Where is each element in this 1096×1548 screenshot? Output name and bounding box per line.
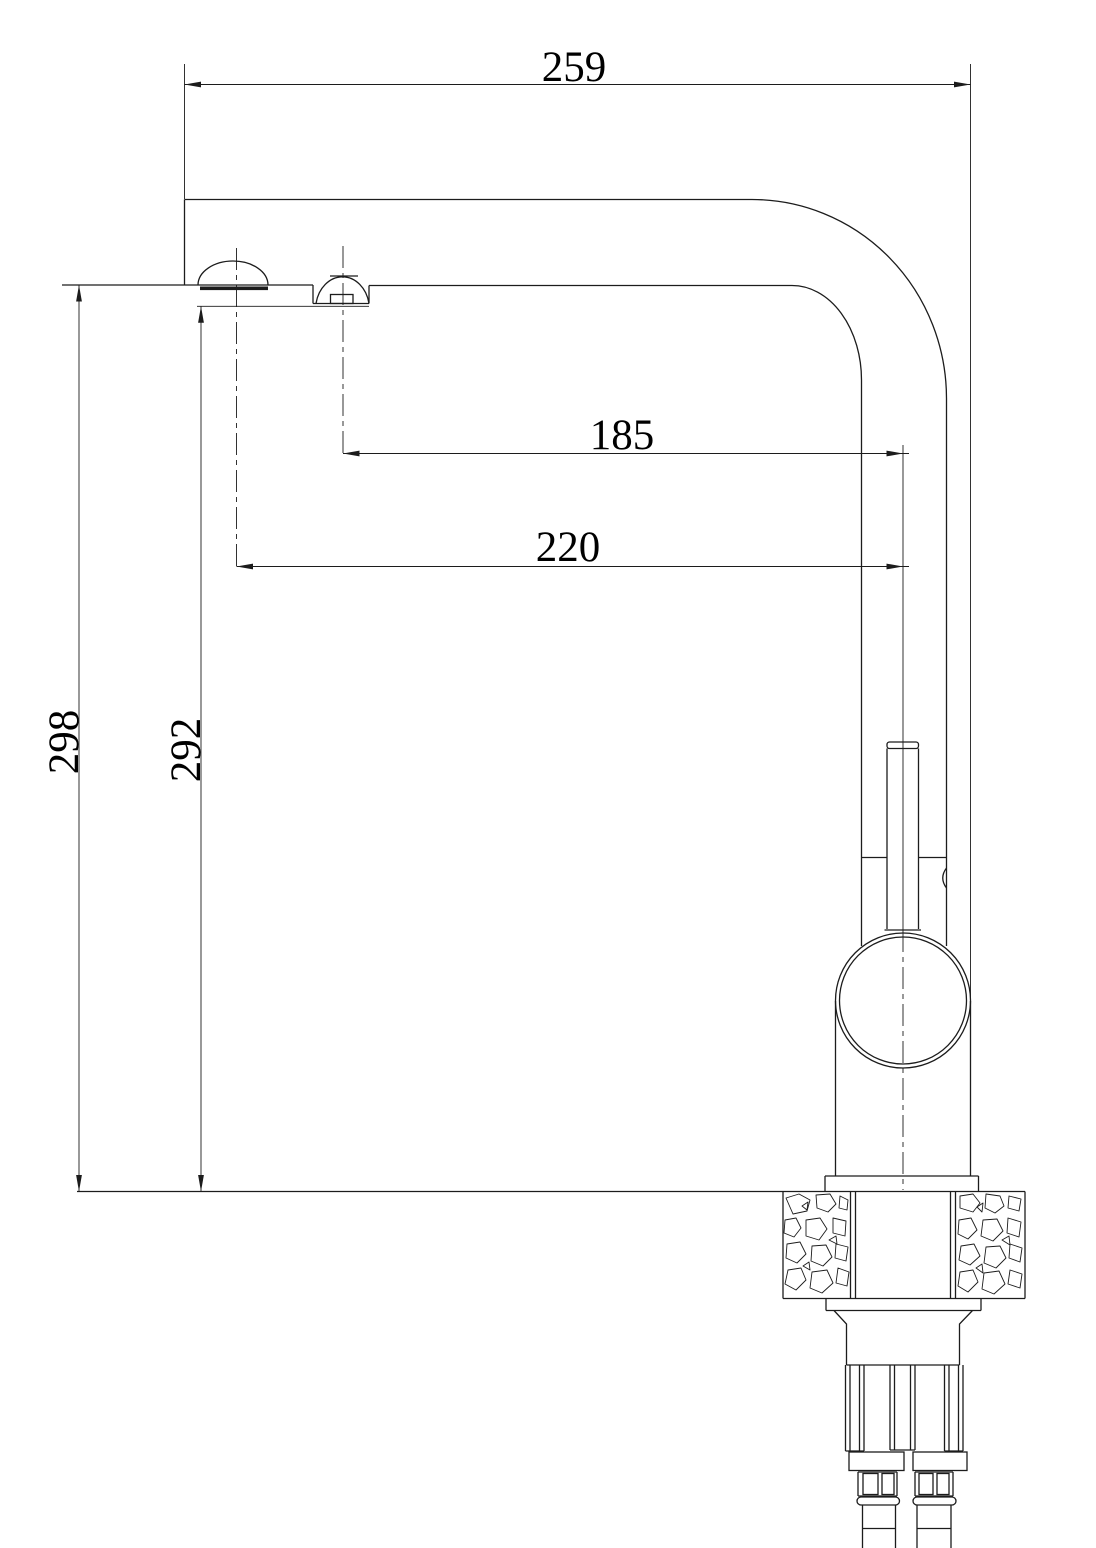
dimension-reach-main: 220: [237, 524, 910, 571]
dimension-height-secondary: 292: [163, 306, 369, 1191]
secondary-outlet-dome: [316, 277, 369, 304]
arrowhead-left: [343, 451, 360, 457]
fitting-ring: [913, 1497, 956, 1505]
faucet-outline: [62, 200, 1025, 1548]
supply-tubes: [846, 1365, 964, 1451]
supply-tube-center: [890, 1365, 915, 1450]
dimension-reach-secondary: 185: [343, 412, 909, 459]
supply-tube-left: [846, 1365, 865, 1451]
dim-reach-main-label: 220: [536, 524, 601, 571]
spout-outer-contour: [185, 200, 947, 947]
dimension-overall-width: 259: [185, 44, 971, 1176]
hose-fitting-right: [913, 1452, 967, 1548]
supply-tube-right: [945, 1365, 964, 1451]
centerlines: [237, 246, 904, 1190]
dim-overall-height-label: 298: [41, 710, 88, 775]
faucet-technical-drawing: 259 185 220 298 292: [0, 0, 1096, 1548]
nut-side-left: [834, 1311, 847, 1366]
dim-overall-width-label: 259: [542, 44, 607, 91]
secondary-outlet-port: [331, 295, 354, 304]
arrowhead-bottom: [198, 1175, 204, 1192]
fitting-window-1: [863, 1474, 878, 1495]
fitting-window-2: [882, 1474, 894, 1495]
arrowhead-bottom: [76, 1175, 82, 1192]
arrowhead-right: [887, 564, 904, 570]
fitting-window-2: [937, 1474, 949, 1495]
countertop-hatch-left: [784, 1194, 849, 1293]
arrowhead-left: [185, 82, 202, 88]
faucet-technical-drawing-page: 259 185 220 298 292: [0, 0, 1096, 1548]
arrowhead-top: [76, 285, 82, 302]
countertop-section: [77, 1192, 1025, 1299]
arrowhead-top: [198, 306, 204, 323]
mounting-flange: [825, 1176, 979, 1192]
fitting-window-1: [919, 1474, 933, 1495]
dim-reach-secondary-label: 185: [590, 412, 655, 459]
arrowhead-right: [887, 451, 904, 457]
fitting-mid-frame: [915, 1472, 953, 1496]
fitting-collar: [913, 1452, 967, 1471]
undercounter-fastening: [826, 1299, 981, 1366]
arrowhead-left: [237, 564, 254, 570]
main-aerator-plate: [200, 287, 268, 291]
nut-side-right: [960, 1311, 973, 1366]
hose-body: [917, 1505, 951, 1548]
hose-body: [863, 1505, 896, 1548]
countertop-hatch-right: [958, 1194, 1022, 1294]
fitting-collar: [849, 1452, 904, 1471]
main-aerator-dome: [198, 261, 268, 285]
spout-inner-contour: [369, 286, 862, 947]
dim-height-secondary-label: 292: [163, 718, 210, 783]
arrowhead-right: [954, 82, 971, 88]
hose-fitting-left: [849, 1452, 904, 1548]
fitting-ring: [857, 1497, 900, 1505]
